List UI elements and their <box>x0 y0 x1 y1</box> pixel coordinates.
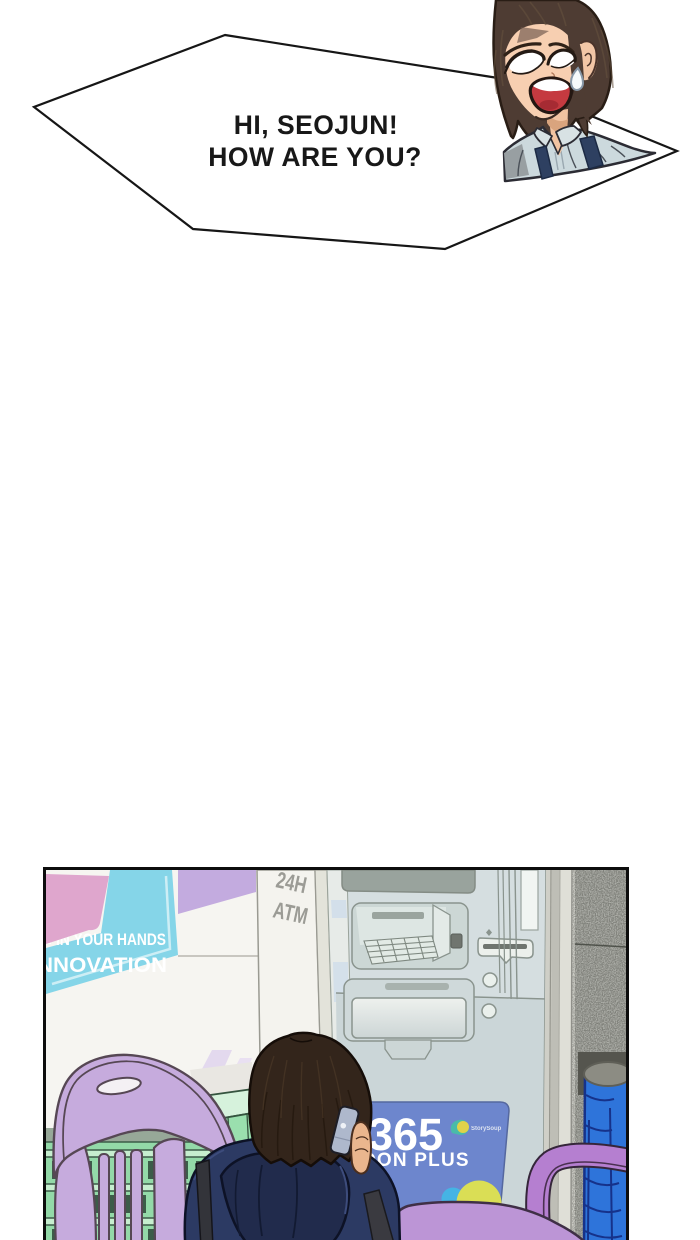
svg-text:HI, SEOJUN!: HI, SEOJUN! <box>234 110 399 140</box>
svg-text:HOW ARE YOU?: HOW ARE YOU? <box>208 142 422 172</box>
svg-text:StorySoup: StorySoup <box>471 1126 502 1132</box>
svg-text:NNOVATION: NNOVATION <box>37 954 167 977</box>
